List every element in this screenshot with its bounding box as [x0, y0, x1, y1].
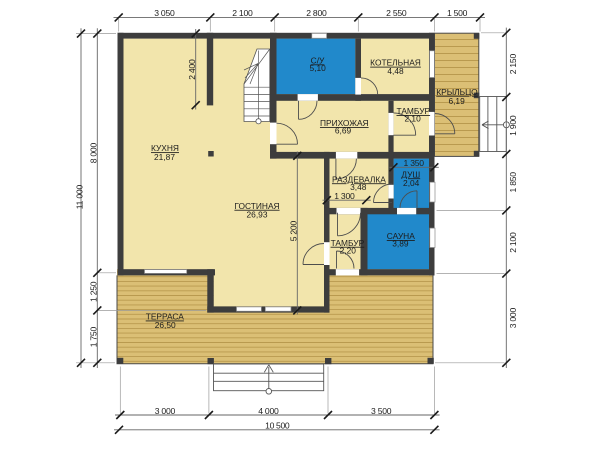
svg-text:4,48: 4,48 — [387, 66, 404, 76]
svg-text:26,93: 26,93 — [247, 209, 268, 219]
svg-text:26,50: 26,50 — [155, 320, 176, 330]
svg-text:1 300: 1 300 — [334, 191, 355, 201]
svg-text:1 500: 1 500 — [447, 8, 468, 18]
svg-text:2,10: 2,10 — [404, 114, 421, 124]
svg-text:1 850: 1 850 — [508, 172, 518, 193]
svg-text:2,04: 2,04 — [403, 178, 420, 188]
svg-text:21,87: 21,87 — [154, 152, 175, 162]
svg-text:2 100: 2 100 — [508, 232, 518, 253]
svg-text:3 000: 3 000 — [508, 308, 518, 329]
svg-text:2,20: 2,20 — [340, 245, 357, 255]
svg-text:3,89: 3,89 — [392, 238, 409, 248]
svg-text:1 900: 1 900 — [508, 115, 518, 136]
svg-text:3 050: 3 050 — [154, 8, 175, 18]
svg-text:8 000: 8 000 — [89, 143, 99, 164]
svg-text:1 750: 1 750 — [89, 327, 99, 348]
svg-text:1 350: 1 350 — [404, 158, 425, 168]
svg-text:3 500: 3 500 — [371, 406, 392, 416]
svg-text:1 250: 1 250 — [89, 281, 99, 302]
svg-text:3,48: 3,48 — [350, 182, 367, 192]
svg-text:5 200: 5 200 — [289, 221, 299, 242]
svg-text:2 550: 2 550 — [386, 8, 407, 18]
svg-text:2 800: 2 800 — [306, 8, 327, 18]
svg-text:11 000: 11 000 — [75, 185, 85, 210]
svg-text:5,10: 5,10 — [310, 63, 327, 73]
svg-text:10 500: 10 500 — [265, 420, 290, 430]
svg-text:2 100: 2 100 — [232, 8, 253, 18]
svg-text:3 000: 3 000 — [155, 406, 176, 416]
svg-text:2 150: 2 150 — [508, 54, 518, 75]
svg-text:2 400: 2 400 — [187, 59, 197, 80]
svg-text:6,19: 6,19 — [448, 96, 465, 106]
svg-text:4 000: 4 000 — [258, 406, 279, 416]
svg-text:6,69: 6,69 — [335, 126, 352, 136]
